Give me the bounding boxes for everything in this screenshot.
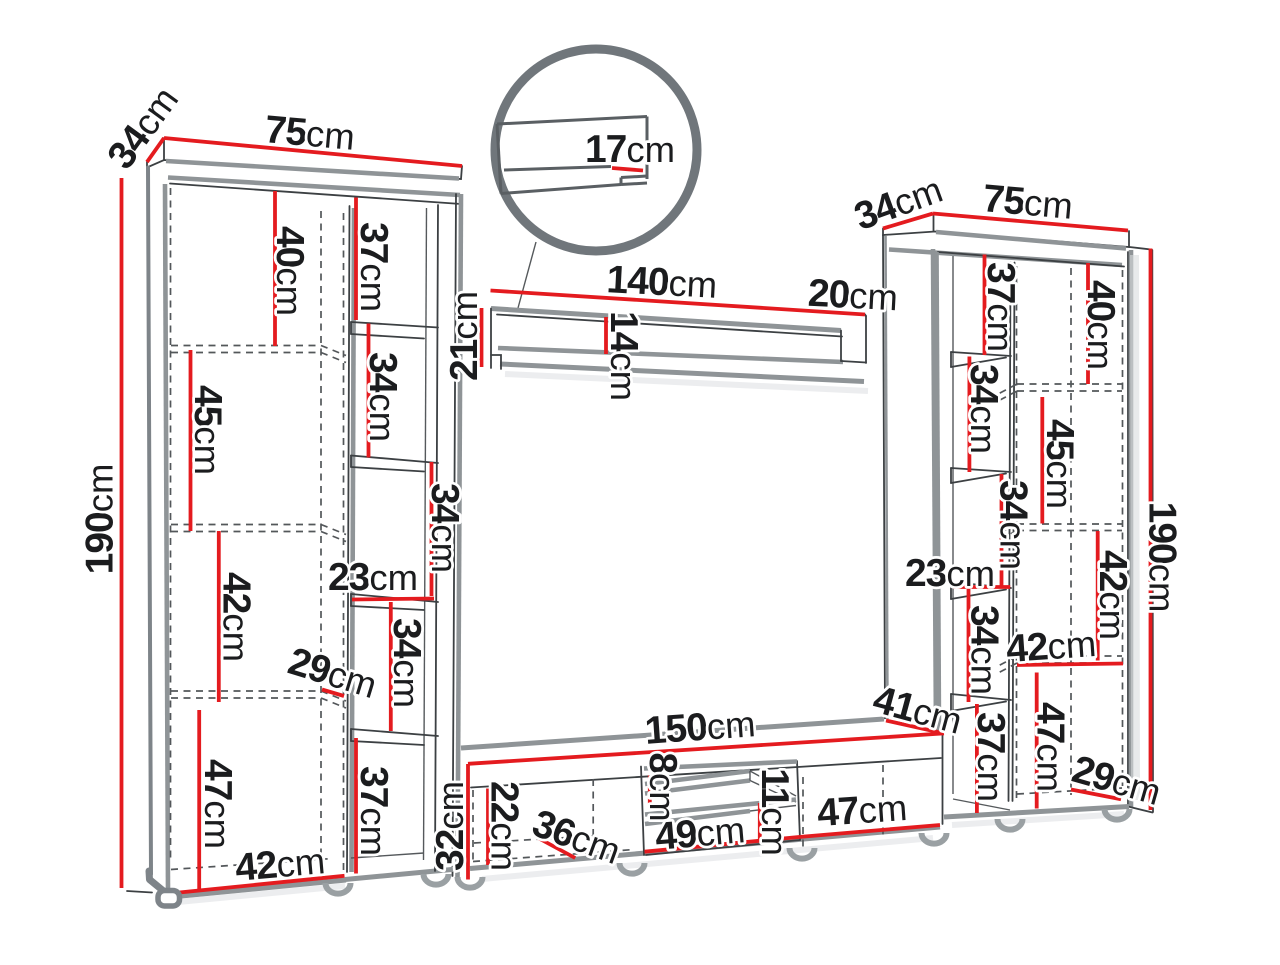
svg-text:42cm: 42cm [215,572,258,662]
svg-text:8cm: 8cm [641,752,684,821]
svg-text:32cm: 32cm [429,781,472,871]
svg-text:17cm: 17cm [585,128,675,171]
svg-text:42cm: 42cm [1005,622,1098,671]
svg-text:34cm: 34cm [992,480,1035,570]
svg-text:42cm: 42cm [1091,550,1134,640]
svg-text:75cm: 75cm [981,177,1074,228]
svg-text:45cm: 45cm [186,385,229,475]
svg-text:37cm: 37cm [352,222,395,312]
svg-text:47cm: 47cm [816,786,909,835]
svg-text:34cm: 34cm [385,618,428,708]
svg-text:47cm: 47cm [196,759,239,849]
svg-text:190cm: 190cm [1140,502,1183,613]
svg-text:23cm: 23cm [905,552,995,595]
svg-text:34cm: 34cm [423,483,466,573]
svg-text:34cm: 34cm [962,364,1005,454]
svg-text:40cm: 40cm [268,226,311,316]
svg-text:22cm: 22cm [483,781,526,871]
svg-text:34cm: 34cm [962,605,1005,695]
svg-text:37cm: 37cm [979,262,1022,352]
svg-text:47cm: 47cm [1028,702,1071,792]
svg-text:140cm: 140cm [606,258,719,307]
svg-text:75cm: 75cm [263,108,356,159]
svg-text:37cm: 37cm [969,712,1012,802]
svg-text:150cm: 150cm [643,702,756,753]
svg-text:14cm: 14cm [602,311,645,401]
svg-text:21cm: 21cm [443,291,486,381]
svg-text:37cm: 37cm [352,766,395,856]
svg-text:20cm: 20cm [807,272,899,320]
svg-text:34cm: 34cm [361,352,404,442]
svg-text:40cm: 40cm [1079,280,1122,370]
svg-text:11cm: 11cm [753,768,796,856]
svg-text:190cm: 190cm [79,464,122,575]
svg-text:23cm: 23cm [328,556,418,599]
svg-text:45cm: 45cm [1038,419,1081,509]
